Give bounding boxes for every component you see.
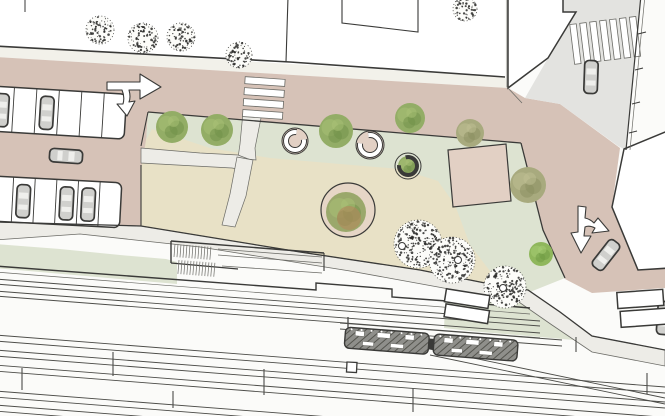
stipple-dot xyxy=(182,31,184,33)
stipple-dot xyxy=(136,42,138,44)
stipple-dot xyxy=(131,39,132,40)
stipple-dot xyxy=(472,2,473,3)
stipple-dot xyxy=(408,226,410,228)
canopy-autumn-blob xyxy=(337,206,361,230)
stipple-dot xyxy=(416,261,418,263)
stipple-dot xyxy=(143,35,145,37)
stipple-dot xyxy=(498,297,501,300)
stipple-dot xyxy=(174,36,175,37)
car-windshield xyxy=(19,192,29,198)
stipple-dot xyxy=(446,268,447,269)
stipple-dot xyxy=(244,51,245,52)
stipple-dot xyxy=(86,32,88,34)
stipple-dot xyxy=(438,253,440,255)
stipple-dot xyxy=(411,223,413,225)
car-body xyxy=(16,184,31,218)
existing-tree-stipple xyxy=(86,16,114,44)
stipple-dot xyxy=(491,294,492,295)
stipple-dot xyxy=(423,225,426,228)
stipple-dot xyxy=(229,52,230,53)
stipple-dot xyxy=(406,260,408,262)
stipple-dot xyxy=(405,226,406,227)
stipple-dot xyxy=(464,248,465,249)
car-west-road xyxy=(49,148,83,164)
stipple-dot xyxy=(191,31,193,33)
stipple-dot xyxy=(187,43,188,44)
stipple-dot xyxy=(522,291,523,292)
stipple-dot xyxy=(458,243,459,244)
stipple-dot xyxy=(243,52,245,54)
stipple-dot xyxy=(181,35,182,36)
stipple-dot xyxy=(432,234,434,236)
stipple-dot xyxy=(395,246,396,247)
stipple-dot xyxy=(441,246,444,249)
stipple-dot xyxy=(411,235,413,237)
stipple-dot xyxy=(183,40,184,41)
train-window xyxy=(479,350,492,355)
stipple-dot xyxy=(153,45,155,47)
stipple-dot xyxy=(423,259,425,261)
stipple-dot xyxy=(141,31,142,32)
stipple-dot xyxy=(414,231,415,232)
stipple-dot xyxy=(503,281,505,283)
stipple-dot xyxy=(247,52,249,54)
stipple-dot xyxy=(400,231,401,232)
stipple-dot xyxy=(444,245,447,248)
train-coupler xyxy=(428,338,434,349)
stipple-dot xyxy=(461,245,463,247)
stipple-dot xyxy=(497,282,499,284)
stipple-dot xyxy=(128,36,130,38)
car-rear-window xyxy=(18,204,28,209)
stipple-dot xyxy=(237,58,239,60)
stipple-dot xyxy=(444,280,446,282)
stipple-dot xyxy=(172,26,174,28)
stipple-dot xyxy=(416,228,418,230)
train-window xyxy=(362,341,373,346)
stipple-dot xyxy=(436,255,438,257)
canopy-blob xyxy=(464,132,475,143)
stipple-dot xyxy=(435,261,436,262)
stipple-dot xyxy=(445,240,446,241)
stipple-dot xyxy=(513,296,515,298)
stipple-dot xyxy=(454,243,455,244)
stipple-dot xyxy=(446,245,448,247)
tree-trunk xyxy=(455,257,462,264)
stipple-dot xyxy=(429,247,431,249)
stipple-dot xyxy=(137,25,139,27)
stipple-dot xyxy=(466,264,468,266)
stipple-dot xyxy=(172,33,173,34)
stipple-dot xyxy=(242,48,244,50)
stipple-dot xyxy=(232,63,234,65)
tree-canopy xyxy=(156,111,188,143)
stipple-dot xyxy=(437,269,438,270)
canopy-blob xyxy=(332,119,344,131)
stipple-dot xyxy=(459,254,461,256)
stipple-dot xyxy=(179,33,180,34)
stipple-dot xyxy=(451,275,453,277)
stipple-dot xyxy=(411,258,413,260)
stipple-dot xyxy=(497,303,498,304)
stipple-dot xyxy=(515,286,516,287)
stipple-dot xyxy=(466,270,469,273)
stipple-dot xyxy=(94,38,96,40)
tree-trunk xyxy=(500,285,507,292)
stipple-dot xyxy=(465,2,467,4)
stipple-dot xyxy=(455,250,457,252)
stipple-dot xyxy=(519,284,521,286)
stipple-dot xyxy=(511,299,513,301)
stipple-dot xyxy=(464,268,466,270)
stipple-dot xyxy=(511,280,513,282)
stipple-dot xyxy=(155,38,156,39)
stipple-dot xyxy=(502,270,504,272)
stipple-dot xyxy=(417,242,420,245)
stipple-dot xyxy=(435,230,437,232)
canopy-blob xyxy=(168,116,179,127)
stipple-dot xyxy=(461,243,462,244)
stipple-dot xyxy=(249,56,250,57)
stipple-dot xyxy=(462,19,464,21)
stipple-outline xyxy=(167,23,195,51)
stipple-dot xyxy=(428,244,429,245)
stipple-dot xyxy=(98,31,99,32)
stipple-dot xyxy=(176,49,177,50)
stipple-dot xyxy=(450,253,452,255)
stipple-dot xyxy=(239,65,240,66)
parking-row-south xyxy=(0,176,122,228)
stipple-dot xyxy=(229,54,230,55)
stipple-dot xyxy=(177,29,179,31)
stipple-dot xyxy=(448,277,450,279)
stipple-dot xyxy=(246,55,247,56)
stipple-dot xyxy=(465,17,467,19)
stipple-dot xyxy=(97,16,99,18)
square-pad xyxy=(448,144,511,207)
car-east-road xyxy=(584,60,599,93)
stipple-dot xyxy=(146,48,147,49)
stipple-dot xyxy=(470,251,471,252)
stipple-dot xyxy=(449,237,451,239)
stipple-dot xyxy=(431,251,433,253)
stipple-dot xyxy=(434,254,436,256)
stipple-dot xyxy=(467,14,468,15)
stipple-dot xyxy=(424,238,426,240)
stipple-dot xyxy=(414,227,416,229)
stipple-dot xyxy=(396,251,398,253)
stipple-dot xyxy=(179,37,181,39)
stipple-dot xyxy=(455,268,456,269)
stipple-dot xyxy=(147,34,148,35)
stipple-dot xyxy=(455,266,456,267)
stipple-dot xyxy=(435,272,436,273)
stipple-dot xyxy=(153,41,155,43)
stipple-dot xyxy=(230,60,232,62)
stipple-dot xyxy=(493,297,495,299)
stipple-dot xyxy=(521,286,522,287)
stipple-dot xyxy=(427,224,429,226)
stipple-dot xyxy=(191,43,192,44)
stipple-dot xyxy=(424,242,426,244)
stipple-dot xyxy=(516,270,518,272)
stipple-dot xyxy=(96,42,97,43)
stipple-dot xyxy=(491,293,492,294)
stipple-dot xyxy=(487,288,489,290)
stipple-dot xyxy=(191,37,192,38)
car-rear-window xyxy=(0,113,6,119)
stipple-dot xyxy=(175,38,177,40)
stipple-dot xyxy=(451,277,452,278)
stipple-dot xyxy=(506,273,508,275)
canopy-blob xyxy=(536,253,546,263)
tree-canopy xyxy=(201,114,233,146)
stipple-dot xyxy=(469,19,470,20)
car-rear-window xyxy=(83,208,93,213)
stipple-dot xyxy=(419,262,420,263)
stipple-dot xyxy=(464,249,466,251)
stipple-dot xyxy=(472,16,473,17)
stipple-dot xyxy=(471,268,472,269)
stipple-dot xyxy=(140,50,141,51)
stipple-dot xyxy=(451,265,452,266)
stipple-dot xyxy=(96,40,97,41)
stipple-dot xyxy=(410,261,411,262)
stipple-dot xyxy=(461,253,462,254)
stipple-dot xyxy=(99,35,101,37)
stipple-dot xyxy=(103,29,105,31)
stipple-dot xyxy=(228,57,229,58)
stipple-dot xyxy=(471,260,473,262)
stipple-dot xyxy=(144,51,146,53)
stipple-dot xyxy=(399,254,401,256)
stipple-dot xyxy=(420,256,421,257)
stipple-dot xyxy=(415,225,416,226)
stipple-dot xyxy=(178,43,181,46)
stipple-dot xyxy=(468,17,469,18)
stipple-dot xyxy=(430,256,432,258)
stipple-dot xyxy=(523,278,524,279)
stipple-dot xyxy=(473,16,474,17)
stipple-dot xyxy=(449,247,450,248)
stipple-dot xyxy=(150,48,152,50)
train-window xyxy=(466,339,479,345)
stipple-dot xyxy=(496,300,498,302)
stipple-dot xyxy=(438,269,441,272)
stipple-dot xyxy=(430,241,431,242)
stipple-dot xyxy=(496,293,498,295)
stipple-dot xyxy=(431,233,433,235)
stipple-dot xyxy=(427,246,429,248)
stipple-dot xyxy=(420,252,421,253)
stipple-dot xyxy=(110,24,111,25)
stipple-dot xyxy=(437,265,438,266)
canopy-blob xyxy=(524,172,537,185)
stipple-dot xyxy=(425,257,427,259)
stipple-dot xyxy=(436,237,437,238)
stipple-dot xyxy=(465,13,466,14)
canopy-blob xyxy=(403,117,415,129)
stipple-dot xyxy=(468,266,469,267)
stipple-dot xyxy=(418,227,419,228)
stipple-dot xyxy=(404,252,405,253)
stipple-dot xyxy=(515,288,517,290)
stipple-dot xyxy=(100,38,102,40)
stipple-dot xyxy=(151,32,152,33)
stipple-dot xyxy=(138,50,140,52)
stipple-dot xyxy=(107,33,110,36)
stipple-dot xyxy=(462,3,463,4)
train-window xyxy=(377,332,390,338)
stipple-dot xyxy=(180,40,181,41)
stipple-dot xyxy=(433,238,434,239)
stipple-dot xyxy=(501,276,502,277)
stipple-dot xyxy=(520,278,522,280)
stipple-dot xyxy=(403,231,404,232)
stipple-dot xyxy=(173,30,174,31)
stipple-dot xyxy=(436,258,438,260)
stipple-dot xyxy=(94,28,96,30)
stipple-dot xyxy=(144,24,145,25)
stipple-dot xyxy=(456,12,458,14)
tree-canopy xyxy=(319,114,353,148)
stipple-dot xyxy=(449,242,451,244)
stipple-dot xyxy=(442,269,444,271)
stipple-dot xyxy=(455,270,456,271)
stipple-dot xyxy=(475,5,476,6)
stipple-dot xyxy=(107,25,108,26)
stipple-dot xyxy=(489,294,490,295)
stipple-dot xyxy=(424,263,425,264)
car-body xyxy=(81,188,96,222)
stipple-dot xyxy=(468,8,470,10)
stipple-dot xyxy=(237,46,239,48)
stipple-dot xyxy=(449,262,451,264)
stipple-dot xyxy=(521,295,522,296)
stipple-dot xyxy=(455,7,458,10)
stipple-dot xyxy=(434,236,436,238)
stipple-dot xyxy=(397,235,399,237)
stipple-dot xyxy=(519,300,520,301)
stipple-dot xyxy=(437,248,439,250)
stipple-dot xyxy=(437,256,439,258)
stipple-dot xyxy=(95,26,97,28)
stipple-dot xyxy=(419,239,421,241)
stipple-dot xyxy=(463,263,464,264)
stipple-dot xyxy=(471,12,474,15)
stipple-dot xyxy=(232,56,234,58)
stipple-dot xyxy=(131,36,132,37)
stipple-dot xyxy=(516,280,518,282)
stipple-dot xyxy=(523,289,524,290)
stipple-dot xyxy=(191,34,192,35)
stipple-dot xyxy=(458,277,460,279)
stipple-dot xyxy=(440,274,442,276)
stipple-dot xyxy=(508,277,509,278)
stipple-dot xyxy=(400,251,403,254)
stipple-dot xyxy=(497,273,498,274)
stipple-dot xyxy=(444,256,445,257)
stipple-dot xyxy=(236,51,237,52)
canopy-blob xyxy=(520,183,534,197)
stipple-dot xyxy=(497,285,499,287)
stipple-dot xyxy=(108,31,109,32)
stipple-dot xyxy=(457,15,458,16)
stipple-dot xyxy=(152,32,153,33)
stipple-dot xyxy=(140,43,141,44)
stipple-dot xyxy=(463,254,465,256)
stipple-dot xyxy=(415,237,417,239)
stipple-dot xyxy=(227,59,229,61)
canopy-blob xyxy=(406,108,417,119)
stipple-dot xyxy=(407,254,409,256)
stipple-dot xyxy=(182,24,183,25)
stipple-dot xyxy=(110,26,112,28)
stipple-dot xyxy=(101,20,102,21)
stipple-dot xyxy=(150,28,153,31)
stipple-dot xyxy=(446,274,448,276)
car-windshield xyxy=(84,196,94,202)
parked-car xyxy=(39,96,54,130)
stipple-dot xyxy=(426,240,427,241)
stipple-dot xyxy=(452,239,454,241)
parked-car xyxy=(0,93,10,127)
stipple-dot xyxy=(522,287,523,288)
stipple-dot xyxy=(146,49,148,51)
car-body xyxy=(39,96,54,130)
stipple-dot xyxy=(431,244,432,245)
stipple-dot xyxy=(234,60,236,62)
stipple-dot xyxy=(411,243,412,244)
stipple-dot xyxy=(184,28,186,30)
stipple-dot xyxy=(448,252,449,253)
stipple-dot xyxy=(438,261,439,262)
stipple-dot xyxy=(511,289,512,290)
stipple-dot xyxy=(419,222,420,223)
canopy-blob xyxy=(406,159,413,166)
stipple-dot xyxy=(498,271,499,272)
stipple-dot xyxy=(461,5,462,6)
stipple-dot xyxy=(138,39,139,40)
stipple-dot xyxy=(508,295,509,296)
stipple-dot xyxy=(444,279,445,280)
stipple-dot xyxy=(234,52,236,54)
stipple-dot xyxy=(511,268,512,269)
stipple-dot xyxy=(520,280,522,282)
stipple-dot xyxy=(241,42,243,44)
stipple-dot xyxy=(416,257,417,258)
canopy-blob xyxy=(328,129,342,143)
stipple-dot xyxy=(489,283,490,284)
stipple-dot xyxy=(439,239,440,240)
stipple-dot xyxy=(179,29,181,31)
car-windshield xyxy=(42,104,52,111)
stipple-dot xyxy=(146,24,148,26)
stipple-dot xyxy=(143,29,145,31)
stipple-dot xyxy=(472,252,473,253)
stipple-dot xyxy=(494,271,496,273)
stipple-dot xyxy=(169,42,171,44)
stipple-dot xyxy=(237,52,238,53)
stipple-dot xyxy=(102,26,104,28)
stipple-dot xyxy=(106,28,107,29)
stipple-dot xyxy=(509,273,510,274)
stipple-dot xyxy=(96,21,98,23)
stipple-dot xyxy=(515,282,517,284)
stipple-dot xyxy=(241,53,243,55)
stipple-dot xyxy=(243,61,244,62)
stipple-dot xyxy=(417,253,418,254)
